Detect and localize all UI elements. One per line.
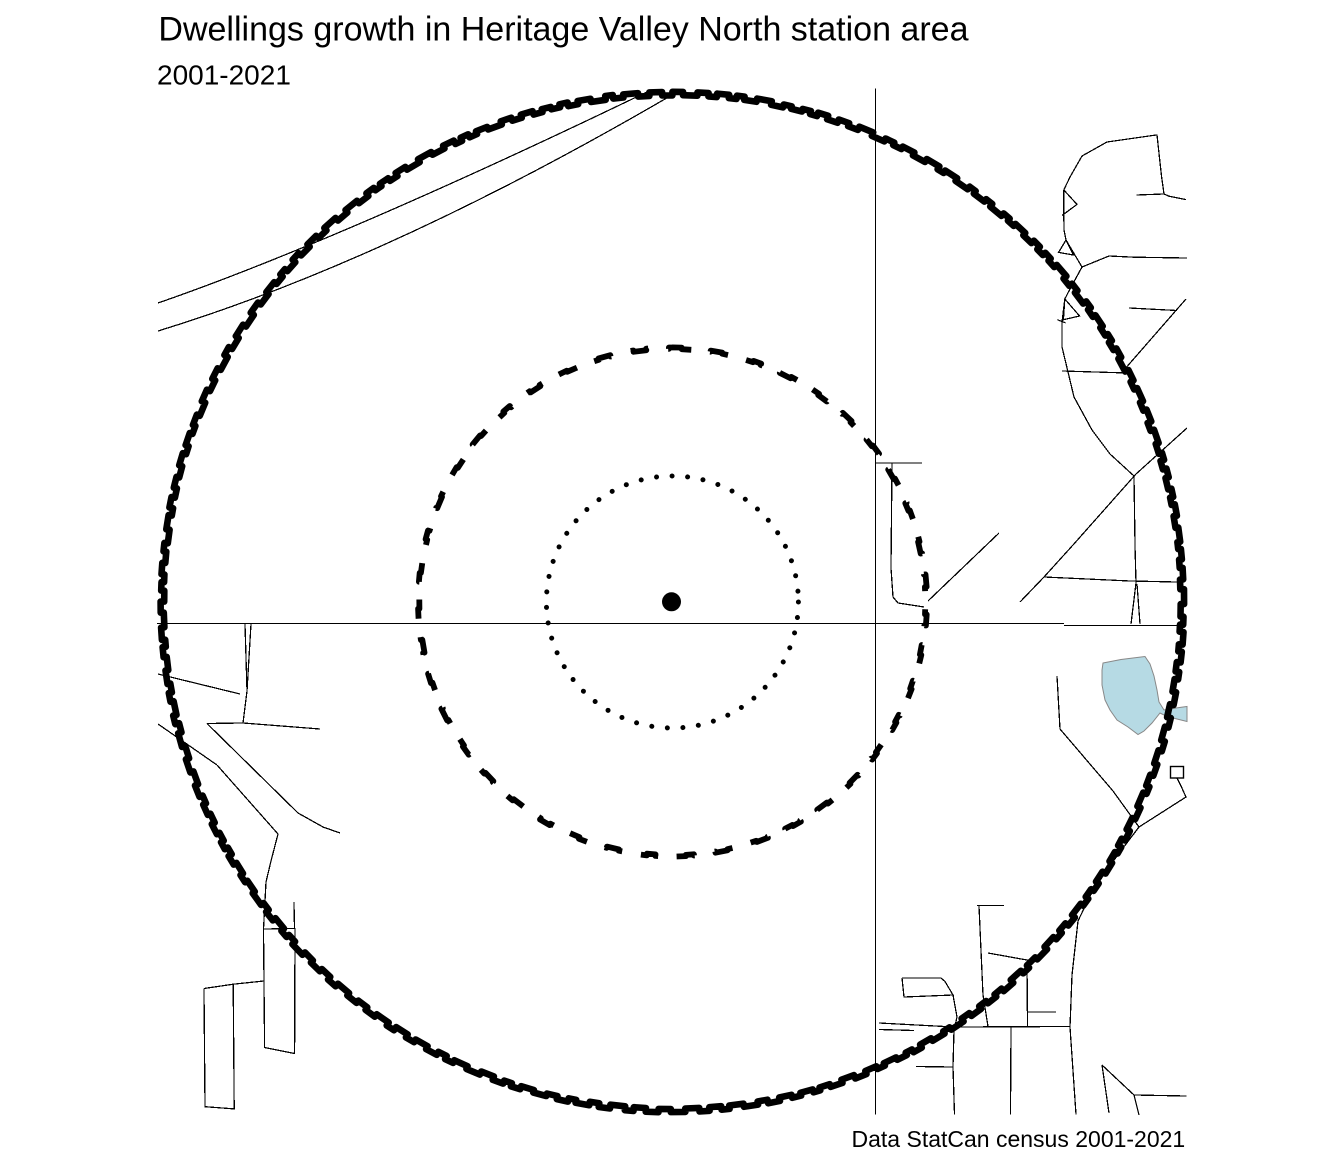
svg-text:2001-2021: 2001-2021 [157, 59, 291, 90]
svg-text:Data StatCan census 2001-2021: Data StatCan census 2001-2021 [852, 1126, 1186, 1152]
svg-text:Dwellings growth in Heritage V: Dwellings growth in Heritage Valley Nort… [158, 11, 968, 49]
